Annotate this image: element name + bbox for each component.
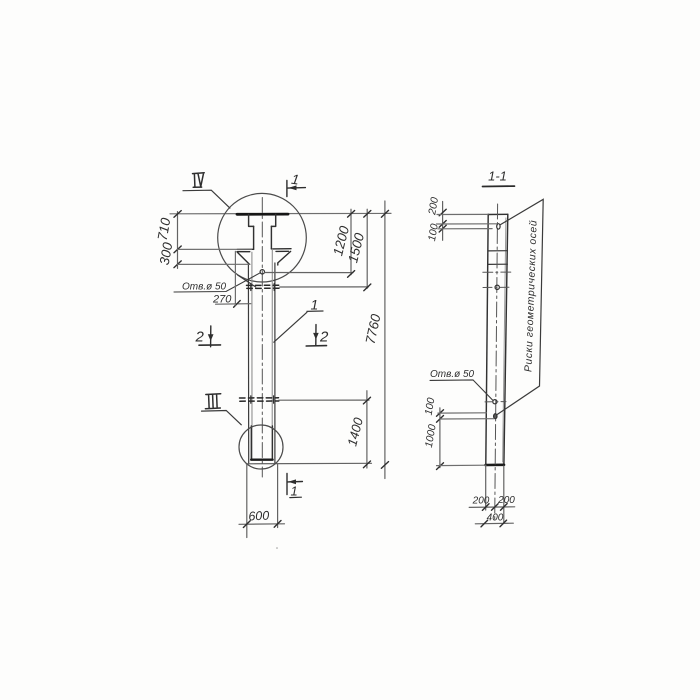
- svg-text:200: 200: [472, 496, 490, 507]
- svg-text:200: 200: [497, 495, 515, 506]
- svg-text:1: 1: [291, 484, 298, 499]
- svg-text:710: 710: [155, 216, 174, 241]
- svg-text:400: 400: [487, 513, 504, 524]
- svg-text:1400: 1400: [344, 415, 366, 447]
- svg-text:7760: 7760: [363, 312, 384, 345]
- svg-text:1: 1: [290, 171, 300, 188]
- svg-text:1-1: 1-1: [488, 169, 507, 184]
- svg-text:2: 2: [319, 329, 329, 346]
- svg-text:Отв.ø 50: Отв.ø 50: [182, 282, 227, 293]
- svg-text:100: 100: [426, 223, 441, 242]
- svg-text:1: 1: [311, 297, 319, 313]
- svg-text:600: 600: [248, 508, 270, 523]
- svg-text:300: 300: [157, 241, 176, 266]
- svg-text:200: 200: [426, 196, 441, 216]
- svg-text:Риски геометрических осей: Риски геометрических осей: [523, 220, 539, 373]
- svg-text:Отв.ø 50: Отв.ø 50: [430, 369, 475, 380]
- svg-text:100: 100: [423, 397, 438, 416]
- svg-text:1000: 1000: [423, 423, 439, 448]
- svg-text:2: 2: [195, 329, 205, 346]
